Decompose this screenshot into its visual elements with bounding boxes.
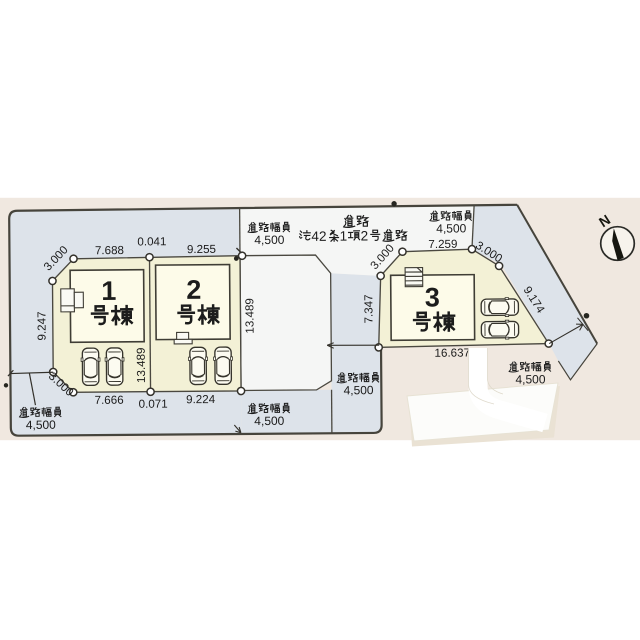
svg-text:16.637: 16.637 [434, 346, 470, 359]
svg-text:7.688: 7.688 [95, 244, 124, 257]
svg-text:4,500: 4,500 [254, 414, 284, 428]
svg-text:7.259: 7.259 [428, 238, 457, 251]
svg-text:2: 2 [186, 275, 201, 305]
svg-text:1: 1 [339, 229, 347, 244]
svg-text:7.347: 7.347 [362, 294, 375, 323]
svg-text:4,500: 4,500 [343, 383, 373, 397]
svg-text:3: 3 [425, 282, 440, 312]
svg-text:13.489: 13.489 [135, 347, 148, 383]
svg-text:9.247: 9.247 [35, 311, 48, 340]
svg-text:9.255: 9.255 [187, 243, 216, 256]
svg-text:4,500: 4,500 [26, 418, 56, 432]
svg-text:4,500: 4,500 [254, 233, 284, 247]
svg-text:13.489: 13.489 [243, 298, 256, 334]
svg-text:9.224: 9.224 [186, 393, 216, 406]
svg-text:4,500: 4,500 [436, 221, 466, 235]
svg-text:1: 1 [101, 276, 116, 306]
svg-text:0.071: 0.071 [139, 398, 168, 411]
svg-text:42: 42 [311, 229, 326, 244]
svg-text:0.041: 0.041 [137, 235, 166, 248]
svg-text:7.666: 7.666 [95, 394, 124, 407]
svg-text:2: 2 [360, 228, 368, 243]
